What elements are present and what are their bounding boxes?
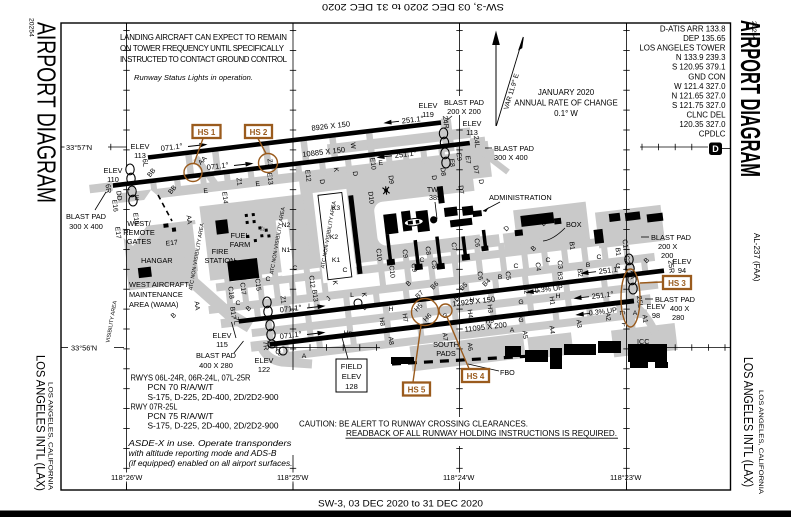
svg-text:GND CON: GND CON [688,72,726,81]
svg-text:H3: H3 [485,304,493,314]
svg-text:Runway Status Lights in operat: Runway Status Lights in operation. [134,73,253,82]
svg-text:98: 98 [652,311,660,320]
svg-text:BLAST PAD: BLAST PAD [196,351,236,360]
svg-text:H8: H8 [377,317,385,327]
svg-text:E16: E16 [110,199,118,212]
svg-text:C: C [546,257,551,264]
svg-text:C: C [343,267,348,274]
svg-text:E7: E7 [464,155,472,164]
svg-text:E17: E17 [165,239,178,247]
svg-text:D-ATIS ARR 133.8: D-ATIS ARR 133.8 [660,25,726,34]
svg-text:D: D [477,179,485,185]
svg-text:389: 389 [429,193,441,202]
svg-text:ANNUAL RATE OF CHANGE: ANNUAL RATE OF CHANGE [514,99,617,108]
svg-text:SW-3, 03 DEC 2020 to 31 DEC: SW-3, 03 DEC 2020 to 31 DEC 2020 [322,1,504,12]
svg-text:C3: C3 [555,260,563,270]
svg-text:6R: 6R [103,184,113,194]
svg-text:D: D [318,179,326,185]
svg-text:PCN 70 R/A/W/T: PCN 70 R/A/W/T [148,383,214,392]
svg-text:128: 128 [345,382,358,391]
svg-text:AREA (WAMA): AREA (WAMA) [129,300,178,309]
svg-text:Z1: Z1 [235,177,243,186]
svg-text:H4: H4 [465,309,473,319]
svg-text:FIELD: FIELD [341,362,363,371]
svg-text:200 X: 200 X [658,242,677,251]
svg-text:H2: H2 [521,285,529,295]
svg-text:E12: E12 [303,169,311,182]
svg-text:Q: Q [275,349,280,356]
svg-text:S-175, D-225, 2D-400, 2D/2D2-9: S-175, D-225, 2D-400, 2D/2D2-900 [148,422,280,431]
svg-text:33°57'N: 33°57'N [66,143,92,152]
svg-text:☆: ☆ [259,225,265,233]
svg-text:Z1: Z1 [266,158,274,167]
svg-text:A5: A5 [521,330,529,339]
svg-text:A3: A3 [575,319,583,328]
svg-text:AIRPORT DIAGRAM: AIRPORT DIAGRAM [32,22,60,203]
svg-text:CPDLC: CPDLC [699,130,726,139]
svg-text:24R: 24R [441,115,452,129]
svg-text:7R: 7R [261,341,271,351]
svg-text:118°24'W: 118°24'W [443,473,474,482]
svg-text:BLAST PAD: BLAST PAD [66,212,106,221]
svg-text:N 133.9 239.3: N 133.9 239.3 [676,53,726,62]
svg-text:D: D [430,175,438,181]
svg-text:REMOTE: REMOTE [123,228,155,237]
svg-text:C: C [420,257,425,264]
svg-text:H: H [556,293,561,300]
svg-text:118°25'W: 118°25'W [277,473,308,482]
svg-text:BLAST PAD: BLAST PAD [651,233,691,242]
svg-text:E9: E9 [455,152,463,161]
svg-text:C9: C9 [409,263,417,273]
svg-text:E13: E13 [265,172,273,185]
svg-text:D7: D7 [471,165,479,175]
svg-text:AL-237 (FAA): AL-237 (FAA) [752,233,761,282]
svg-text:110: 110 [107,175,119,184]
svg-text:RWY 07R-25L: RWY 07R-25L [131,402,179,411]
svg-text:STATION: STATION [205,256,236,265]
svg-text:RWYS 06L-24R, 06R-24L, 07L-25R: RWYS 06L-24R, 06R-24L, 07L-25R [131,374,251,383]
svg-text:24L: 24L [472,135,482,148]
svg-text:B1: B1 [614,247,622,256]
svg-text:122: 122 [258,365,270,374]
svg-text:C: C [266,276,271,283]
svg-text:H: H [389,306,394,313]
svg-text:N 121.65 327.0: N 121.65 327.0 [672,91,727,100]
svg-text:L: L [308,303,312,310]
svg-text:READBACK OF ALL RUNWAY HOLDING: READBACK OF ALL RUNWAY HOLDING INSTRUCTI… [346,429,617,438]
svg-text:33°56'N: 33°56'N [71,344,97,353]
svg-text:INSTRUCTED TO CONTACT GROUND C: INSTRUCTED TO CONTACT GROUND CONTROL [120,55,288,64]
svg-text:PCN 75 R/A/W/T: PCN 75 R/A/W/T [148,412,214,421]
svg-text:A4: A4 [548,325,556,334]
svg-text:ELEV: ELEV [213,331,232,340]
svg-text:S 121.75 327.0: S 121.75 327.0 [672,101,726,110]
svg-text:94: 94 [678,266,686,275]
svg-text:118°26'W: 118°26'W [111,473,142,482]
svg-text:BLAST PAD: BLAST PAD [655,295,695,304]
svg-text:A: A [633,310,638,317]
svg-text:C4: C4 [533,262,541,272]
svg-text:A1: A1 [641,314,649,323]
svg-text:ELEV: ELEV [131,142,150,151]
svg-text:GATES: GATES [127,237,152,246]
svg-text:AIRPORT DIAGRAM: AIRPORT DIAGRAM [735,20,766,177]
svg-text:E17: E17 [113,226,121,239]
svg-text:FBO: FBO [500,368,515,377]
svg-text:LOS ANGELES, CALIFORNIA: LOS ANGELES, CALIFORNIA [757,390,764,495]
svg-text:B1: B1 [568,241,576,250]
svg-text:400 X 280: 400 X 280 [199,361,233,370]
svg-text:FUEL: FUEL [231,231,250,240]
svg-text:120.35 327.0: 120.35 327.0 [679,120,726,129]
svg-text:HS 2: HS 2 [250,128,268,137]
svg-text:LANDING AIRCRAFT CAN EXPECT TO: LANDING AIRCRAFT CAN EXPECT TO REMAIN [120,33,287,42]
svg-text:ELEV: ELEV [255,356,274,365]
svg-text:D9: D9 [386,175,394,185]
svg-text:115: 115 [216,340,228,349]
svg-text:with altitude reporting mode a: with altitude reporting mode and ADS-B [129,449,277,458]
svg-text:HS 1: HS 1 [198,128,216,137]
svg-text:HS 5: HS 5 [408,386,426,395]
svg-text:BOX: BOX [566,220,582,229]
svg-text:C8: C8 [429,260,437,270]
svg-text:B: B [498,274,503,281]
svg-text:D: D [712,144,719,154]
svg-text:(if equipped) enabled on all a: (if equipped) enabled on all airport sur… [129,459,293,468]
svg-text:300 X 400: 300 X 400 [494,153,528,162]
svg-text:WEST AIRCRAFT: WEST AIRCRAFT [129,280,189,289]
svg-text:L: L [350,292,354,299]
svg-text:SOUTH: SOUTH [433,340,459,349]
svg-text:HS 4: HS 4 [467,372,485,381]
svg-text:SW-3, 03 DEC 2020 to 31 DEC: SW-3, 03 DEC 2020 to 31 DEC 2020 [318,499,483,510]
svg-text:S 120.95 379.1: S 120.95 379.1 [672,63,726,72]
svg-text:A8: A8 [387,336,395,345]
svg-text:ELEV: ELEV [342,372,362,381]
svg-text:LOS ANGELES INTL (LAX): LOS ANGELES INTL (LAX) [34,355,48,491]
svg-text:E8: E8 [448,158,456,167]
svg-text:119: 119 [422,110,434,119]
svg-text:D8: D8 [438,167,446,177]
svg-text:118°23'W: 118°23'W [610,473,641,482]
svg-text:ASDE-X in use. Operate transpo: ASDE-X in use. Operate transponders [127,439,291,448]
svg-text:113: 113 [466,128,478,137]
svg-text:C5: C5 [503,271,511,281]
svg-text:K1: K1 [332,257,341,264]
svg-text:ADMINISTRATION: ADMINISTRATION [489,193,552,202]
svg-text:ON TOWER FREQUENCY UNTIL SPECI: ON TOWER FREQUENCY UNTIL SPECIFICALLY [120,44,285,53]
svg-text:113: 113 [134,151,146,160]
svg-text:C: C [514,263,519,270]
svg-text:280: 280 [672,313,684,322]
svg-text:HANGAR: HANGAR [141,256,173,265]
svg-text:H1: H1 [547,296,555,306]
svg-text:Z1: Z1 [279,295,287,304]
svg-text:400 X: 400 X [670,304,689,313]
svg-text:200 X 200: 200 X 200 [447,107,481,116]
svg-text:ELEV: ELEV [104,166,123,175]
svg-text:DEP 135.65: DEP 135.65 [683,34,726,43]
svg-text:Hp: Hp [344,330,353,337]
svg-text:B13: B13 [310,289,318,302]
svg-text:200: 200 [661,251,673,260]
svg-text:PADS: PADS [436,349,456,358]
svg-text:B: B [586,262,591,269]
svg-text:B3: B3 [556,271,564,280]
svg-text:7L: 7L [232,316,242,325]
svg-text:C: C [293,265,298,272]
svg-text:FIRE: FIRE [212,247,229,256]
svg-text:E14: E14 [220,191,228,204]
svg-text:LOS ANGELES, CALIFORNIA: LOS ANGELES, CALIFORNIA [47,382,54,491]
svg-text:WEST/: WEST/ [127,219,151,228]
svg-text:C: C [236,300,241,307]
svg-text:W 121.4 327.0: W 121.4 327.0 [674,82,726,91]
svg-text:G: G [518,317,523,324]
svg-text:C: C [597,254,602,261]
svg-text:BLAST PAD: BLAST PAD [444,98,484,107]
svg-text:C2: C2 [622,255,630,265]
svg-text:ELEV: ELEV [673,257,692,266]
svg-text:D: D [351,171,359,177]
svg-text:0.1° W: 0.1° W [554,109,578,118]
svg-text:CLNC DEL: CLNC DEL [686,111,726,120]
svg-text:N1: N1 [282,247,291,254]
svg-text:MAINTENANCE: MAINTENANCE [129,290,183,299]
svg-text:C9: C9 [400,249,408,259]
svg-text:C6: C6 [475,271,483,281]
svg-text:E: E [135,195,140,202]
svg-text:JANUARY 2020: JANUARY 2020 [538,88,595,97]
svg-text:AA: AA [184,215,192,225]
svg-text:BLAST PAD: BLAST PAD [494,144,534,153]
svg-text:AA: AA [192,301,200,311]
svg-text:G: G [518,299,523,306]
svg-text:A: A [510,327,515,334]
svg-text:C7: C7 [449,242,457,252]
svg-text:LOS ANGELES TOWER: LOS ANGELES TOWER [639,44,725,53]
svg-text:D7: D7 [456,185,464,195]
svg-text:S-175, D-225, 2D-400, 2D/2D2-9: S-175, D-225, 2D-400, 2D/2D2-900 [148,393,280,402]
svg-text:FARM: FARM [230,240,251,249]
svg-text:CAUTION: BE ALERT TO RUNWAY CR: CAUTION: BE ALERT TO RUNWAY CROSSING CLE… [299,419,528,428]
svg-text:300 X 400: 300 X 400 [69,222,103,231]
svg-text:H7: H7 [400,313,408,323]
svg-text:C1: C1 [620,239,628,249]
svg-text:HS 3: HS 3 [668,279,686,288]
svg-text:A: A [302,353,307,360]
svg-text:ICC: ICC [637,337,649,346]
svg-text:A6: A6 [466,342,474,351]
svg-text:ELEV: ELEV [419,101,438,110]
svg-text:LOS ANGELES INTL (LAX): LOS ANGELES INTL (LAX) [741,357,755,487]
svg-text:ELEV: ELEV [463,119,482,128]
svg-text:C6: C6 [472,238,480,248]
svg-text:C8: C8 [423,246,431,256]
svg-text:E10: E10 [368,157,376,170]
